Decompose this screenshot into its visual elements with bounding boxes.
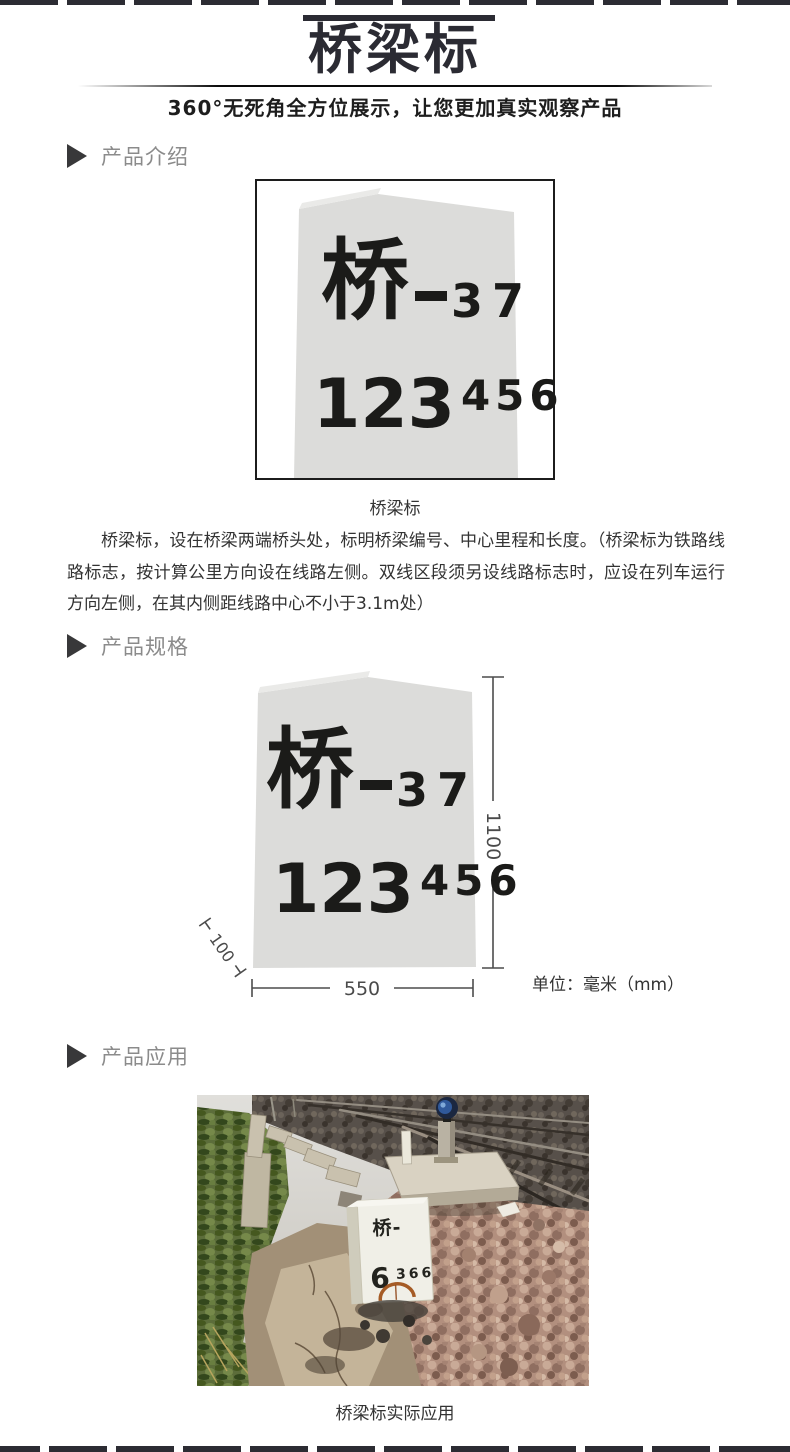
- product-detail-page: 桥梁标 360°无死角全方位展示，让您更加真实观察产品 产品介绍 桥 37 12…: [0, 0, 790, 1452]
- stone-dash: [415, 291, 447, 301]
- stone-serial: 37: [396, 774, 478, 807]
- stone-mileage-small: 456: [461, 375, 564, 417]
- section-header-intro: 产品介绍: [67, 141, 189, 171]
- stone-text-line2: 123 456: [313, 371, 564, 439]
- application-photo-caption: 桥梁标实际应用: [0, 1399, 790, 1424]
- stone-text-line2: 123 456: [272, 856, 523, 924]
- height-dimension-label: 1100: [482, 812, 504, 860]
- signal-lens: [438, 1100, 452, 1114]
- bridge-marker-stone: 桥- 6 366: [346, 1197, 436, 1304]
- wet-patch: [323, 1327, 375, 1351]
- intro-figure-caption: 桥梁标: [0, 494, 790, 519]
- white-post: [401, 1131, 411, 1164]
- stone-serial: 37: [451, 285, 533, 318]
- stone-text-line1: 桥 37: [266, 728, 478, 812]
- section-label-intro: 产品介绍: [101, 141, 189, 171]
- section-header-spec: 产品规格: [67, 631, 189, 661]
- spec-diagram-graphic: 1100 550 100 单位：毫米（mm）: [180, 660, 720, 1015]
- product-intro-figure: 桥 37 123 456: [255, 179, 555, 480]
- section-header-application: 产品应用: [67, 1041, 189, 1071]
- stone-dash: [360, 780, 392, 790]
- page-title: 桥梁标: [0, 22, 790, 79]
- signal-pillar-shade: [450, 1121, 455, 1161]
- photo-stone-digits-small: 366: [396, 1265, 435, 1283]
- application-photo: 桥- 6 366: [197, 1095, 589, 1386]
- rust-drip: [396, 1285, 397, 1300]
- triangle-bullet-icon: [67, 144, 87, 168]
- signal-pillar-base: [434, 1157, 458, 1163]
- thickness-dimension-label: 100: [205, 930, 238, 966]
- product-spec-figure: 1100 550 100 单位：毫米（mm） 桥: [180, 660, 720, 1015]
- photo-stone-top-text: 桥-: [372, 1216, 402, 1240]
- triangle-bullet-icon: [67, 1044, 87, 1068]
- railway-scene: 桥- 6 366: [197, 1095, 589, 1386]
- width-dimension-label: 550: [344, 978, 380, 1000]
- photo-stone-digit: 6: [369, 1261, 390, 1295]
- stone-char: 桥: [266, 728, 354, 812]
- section-label-spec: 产品规格: [101, 631, 189, 661]
- thickness-dimension: 100: [196, 917, 247, 979]
- stone-mileage-small: 456: [420, 860, 523, 902]
- signal-highlight: [440, 1102, 445, 1107]
- triangle-bullet-icon: [67, 634, 87, 658]
- intro-description: 桥梁标，设在桥梁两端桥头处，标明桥梁编号、中心里程和长度。（桥梁标为铁路线路标志…: [67, 526, 725, 621]
- stone-char: 桥: [321, 239, 409, 323]
- unit-label: 单位：毫米（mm）: [532, 975, 684, 995]
- stone-text-line1: 桥 37: [321, 239, 533, 323]
- section-label-application: 产品应用: [101, 1041, 189, 1071]
- soil-patch: [358, 1300, 428, 1322]
- bottom-divider-strip: [0, 1446, 790, 1452]
- wet-patch: [305, 1356, 345, 1374]
- stone-mileage-large: 123: [313, 371, 455, 439]
- page-subtitle: 360°无死角全方位展示，让您更加真实观察产品: [0, 92, 790, 121]
- title-underline: [78, 85, 712, 87]
- top-divider-strip: [0, 0, 790, 5]
- stone-mileage-large: 123: [272, 856, 414, 924]
